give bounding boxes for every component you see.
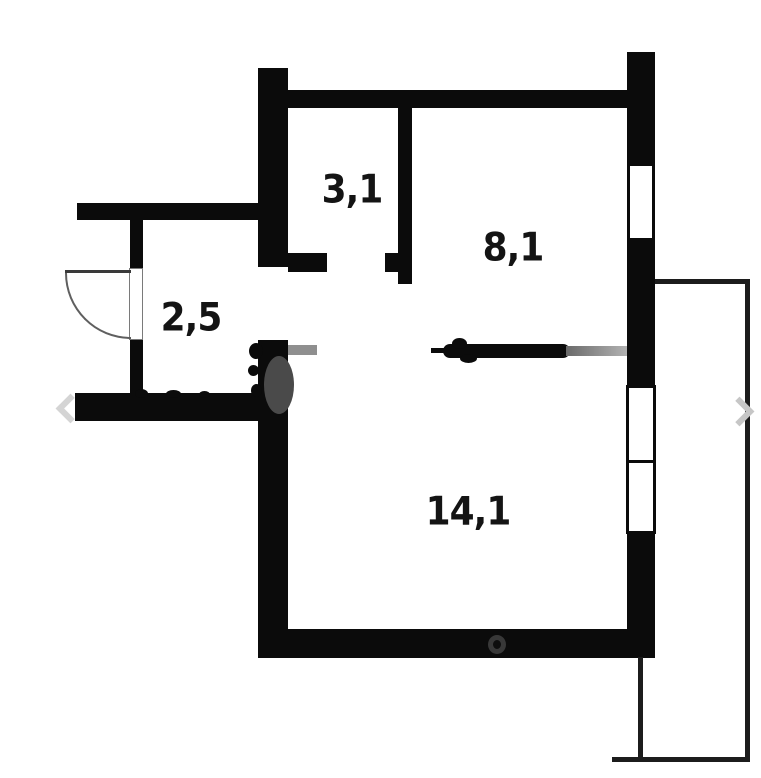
wall-right-upper: [627, 52, 655, 163]
wall-bottom: [258, 629, 655, 658]
wall-wc-door-stub-right: [385, 253, 412, 272]
wall-hall-left-upper: [130, 219, 143, 270]
wall-right-middle: [627, 241, 655, 387]
wall-hall-bottom: [75, 393, 288, 421]
watermark-ring-bottom-wall: [488, 635, 506, 654]
balcony-top-line: [655, 279, 750, 284]
watermark-blob: [135, 389, 148, 398]
watermark-blob: [199, 391, 210, 398]
entry-door-opening: [129, 268, 143, 340]
watermark-blob: [248, 365, 259, 376]
living-room-window: [626, 385, 656, 534]
kitchen-window: [627, 163, 655, 241]
floor-plan: 3,1 8,1 2,5 14,1: [0, 0, 761, 778]
wall-left-pier-upper: [258, 68, 288, 267]
watermark-blob: [166, 390, 181, 398]
watermark-blob: [452, 338, 467, 349]
watermark-blob: [251, 384, 262, 397]
balcony-bottom-line: [612, 757, 750, 762]
window-mullion: [629, 460, 653, 463]
wall-top: [258, 90, 655, 108]
entry-door-swing-arc: [65, 273, 131, 339]
wall-partition-tail: [431, 348, 447, 353]
watermark-ellipse: [264, 356, 294, 414]
room-area-label-kitchen: 8,1: [483, 226, 544, 271]
watermark-blob: [460, 354, 477, 363]
wall-partition-gray-right: [566, 346, 627, 356]
watermark-blob: [249, 343, 263, 359]
balcony-right-line: [745, 279, 750, 762]
wall-partition-gray-left: [288, 345, 317, 355]
room-area-label-living-room: 14,1: [426, 490, 511, 535]
balcony-left-line: [638, 657, 643, 762]
wall-hall-left-lower: [130, 339, 143, 396]
wall-wc-door-stub-left: [288, 253, 327, 272]
wall-hall-top: [77, 203, 258, 220]
room-area-label-wc: 3,1: [322, 168, 383, 213]
room-area-label-hallway: 2,5: [161, 296, 222, 341]
